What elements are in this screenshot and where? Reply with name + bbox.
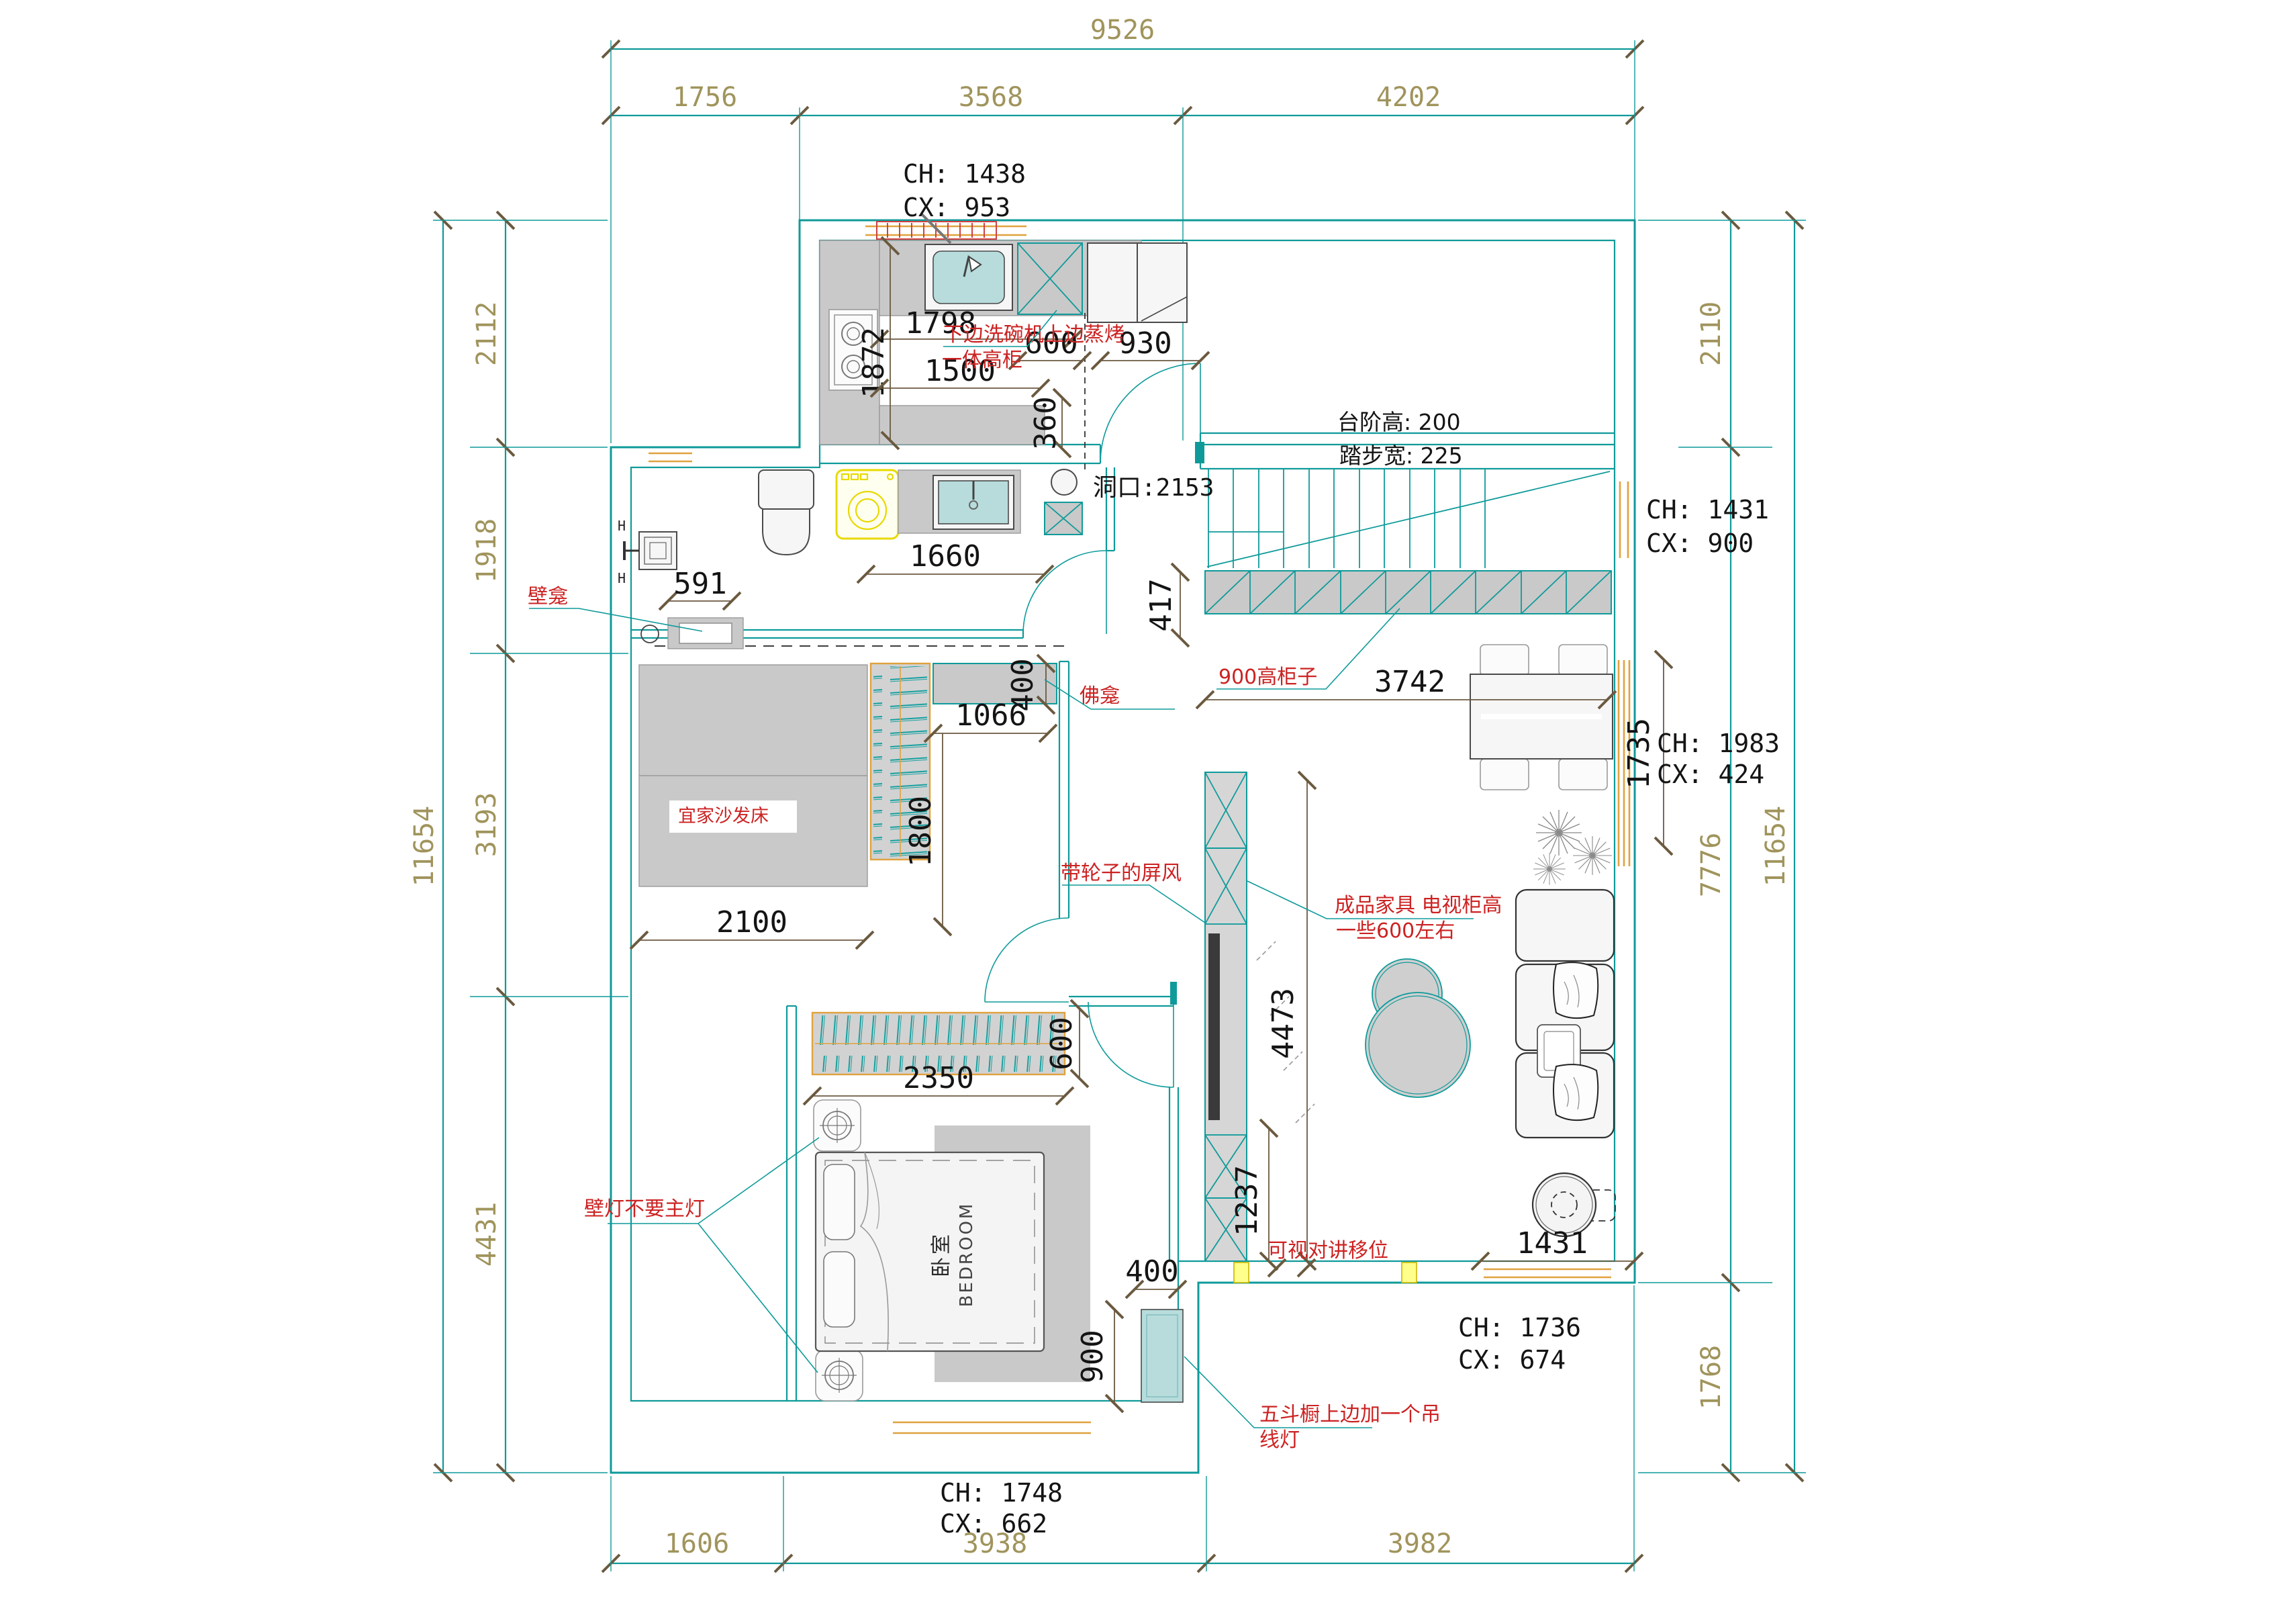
dim-left-seg3: 3193 <box>471 792 502 857</box>
svg-text:H: H <box>618 570 626 586</box>
dim-1800: 1800 <box>904 796 938 867</box>
svg-text:H: H <box>618 518 626 534</box>
label-ch-living: CH: 1736 <box>1458 1313 1581 1342</box>
window-bedroom-bottom <box>893 1422 1091 1433</box>
dim-3742: 3742 <box>1374 665 1445 699</box>
dim-bottom-seg1: 1606 <box>665 1528 729 1559</box>
window-left-upper <box>649 453 692 461</box>
window-stair-right <box>1620 481 1628 558</box>
dim-opening-2153: 洞口:2153 <box>1093 474 1214 502</box>
dimension-chain-left: 11654 2112 1918 3193 4431 <box>409 212 628 1481</box>
label-cx-top: CX: 953 <box>903 193 1010 222</box>
label-ch-dining: CH: 1983 <box>1657 729 1780 758</box>
label-cx-stair: CX: 900 <box>1646 529 1754 558</box>
dim-600-closet: 600 <box>1045 1017 1079 1070</box>
bathroom-shaft <box>1045 502 1082 535</box>
annotation-tv-2: 一些600左右 <box>1336 919 1455 943</box>
fridge-cabinet <box>1088 243 1187 322</box>
dim-left-seg4: 4431 <box>471 1202 502 1267</box>
dimension-chain-top: 9526 1756 3568 4202 <box>602 15 1643 443</box>
toilet <box>759 470 814 555</box>
kitchen-sink <box>925 244 1012 310</box>
dim-1237: 1237 <box>1230 1165 1264 1236</box>
window-living-bottom <box>1484 1269 1611 1277</box>
dim-2350: 2350 <box>903 1061 974 1095</box>
door-hinge-strip <box>1195 442 1204 463</box>
dim-top-seg2: 3568 <box>959 82 1023 113</box>
dim-1431: 1431 <box>1517 1226 1588 1260</box>
dim-1660: 1660 <box>910 539 981 573</box>
rug-circles <box>1366 959 1470 1097</box>
tv <box>1208 933 1220 1120</box>
stair-cabinet <box>1205 571 1611 614</box>
label-ch-bedroom: CH: 1748 <box>940 1478 1063 1508</box>
floor-drain <box>641 625 659 643</box>
annotation-wall-lamp: 壁灯不要主灯 <box>584 1197 705 1221</box>
dresser <box>1141 1310 1183 1402</box>
dim-1066: 1066 <box>955 698 1026 733</box>
dim-total-height-left: 11654 <box>409 806 440 886</box>
annotation-intercom: 可视对讲移位 <box>1267 1239 1388 1262</box>
label-cx-bedroom: CX: 662 <box>940 1509 1047 1539</box>
nightstand-top <box>814 1100 861 1151</box>
door-entry <box>1100 363 1204 463</box>
dim-360: 360 <box>1029 396 1063 449</box>
label-cx-living: CX: 674 <box>1458 1345 1566 1375</box>
door-bathroom <box>1023 551 1106 634</box>
annotation-buddha-niche: 佛龛 <box>1080 684 1120 708</box>
room-name-cn: 卧室 <box>930 1232 953 1277</box>
dim-right-seg1: 2110 <box>1696 302 1727 366</box>
switch-box <box>1402 1262 1417 1283</box>
dim-bottom-seg3: 3982 <box>1388 1528 1452 1559</box>
annotation-wall-niche: 壁龛 <box>528 585 568 608</box>
wall-niche <box>668 618 743 649</box>
dim-2100: 2100 <box>716 905 787 939</box>
label-ch-stair: CH: 1431 <box>1646 495 1769 524</box>
dishwasher <box>1018 243 1082 314</box>
dim-top-seg3: 4202 <box>1376 82 1441 113</box>
annotation-kitchen-1: 下边洗碗机上边蒸烤 <box>943 323 1125 347</box>
label-ch-top: CH: 1438 <box>903 159 1026 189</box>
door-hall-bedroom <box>1088 982 1177 1087</box>
floor-plan-drawing: 9526 1756 3568 4202 1606 3938 3982 11654… <box>0 0 2296 1607</box>
dim-591: 591 <box>673 567 726 601</box>
dim-total-width: 9526 <box>1090 15 1155 46</box>
annotation-stair-cabinet: 900高柜子 <box>1218 665 1317 689</box>
dim-4473: 4473 <box>1266 988 1300 1059</box>
switch-box <box>1234 1262 1249 1283</box>
dim-1735: 1735 <box>1622 718 1656 789</box>
annotation-tv-1: 成品家具 电视柜高 <box>1335 894 1502 917</box>
sofa <box>1516 890 1614 1138</box>
washing-machine <box>836 470 898 539</box>
bathroom-light <box>1051 469 1077 495</box>
bathroom-counter <box>898 470 1020 533</box>
door-sofa-room <box>985 918 1069 1002</box>
dim-total-height-right: 11654 <box>1760 806 1791 886</box>
annotation-dresser-2: 线灯 <box>1259 1428 1300 1452</box>
pillow <box>1553 962 1598 1018</box>
annotation-screen: 带轮子的屏风 <box>1061 862 1182 885</box>
stairs <box>1207 469 1610 568</box>
window-kitchen-top <box>865 226 1026 235</box>
dim-left-seg1: 2112 <box>471 302 502 366</box>
dim-1872: 1872 <box>857 327 891 398</box>
dim-417: 417 <box>1144 578 1178 631</box>
shower-head: H H <box>618 518 677 586</box>
annotation-dresser-1: 五斗橱上边加一个吊 <box>1259 1403 1441 1426</box>
annotation-sofa-bed: 宜家沙发床 <box>678 806 769 827</box>
dim-400-dresser: 400 <box>1125 1254 1178 1289</box>
dim-left-seg2: 1918 <box>471 518 502 583</box>
sofa-bed <box>639 665 867 886</box>
dim-right-seg2: 7776 <box>1696 833 1727 897</box>
pillow <box>1553 1064 1598 1120</box>
room-name-en: BEDROOM <box>957 1202 977 1307</box>
label-cx-dining: CX: 424 <box>1657 760 1764 789</box>
floor-plan-canvas: 9526 1756 3568 4202 1606 3938 3982 11654… <box>0 0 2296 1607</box>
dim-top-seg1: 1756 <box>673 82 737 113</box>
label-stair-tread: 踏步宽: 225 <box>1339 443 1463 469</box>
label-stair-rise: 台阶高: 200 <box>1337 409 1461 435</box>
annotation-kitchen-2: 一体高柜 <box>942 349 1022 372</box>
dim-right-seg3: 1768 <box>1696 1345 1727 1410</box>
dim-900-dresser: 900 <box>1075 1330 1110 1383</box>
door-hinge-strip <box>1170 982 1177 1005</box>
nightstand-bottom <box>816 1350 863 1401</box>
dim-930: 930 <box>1118 326 1171 361</box>
